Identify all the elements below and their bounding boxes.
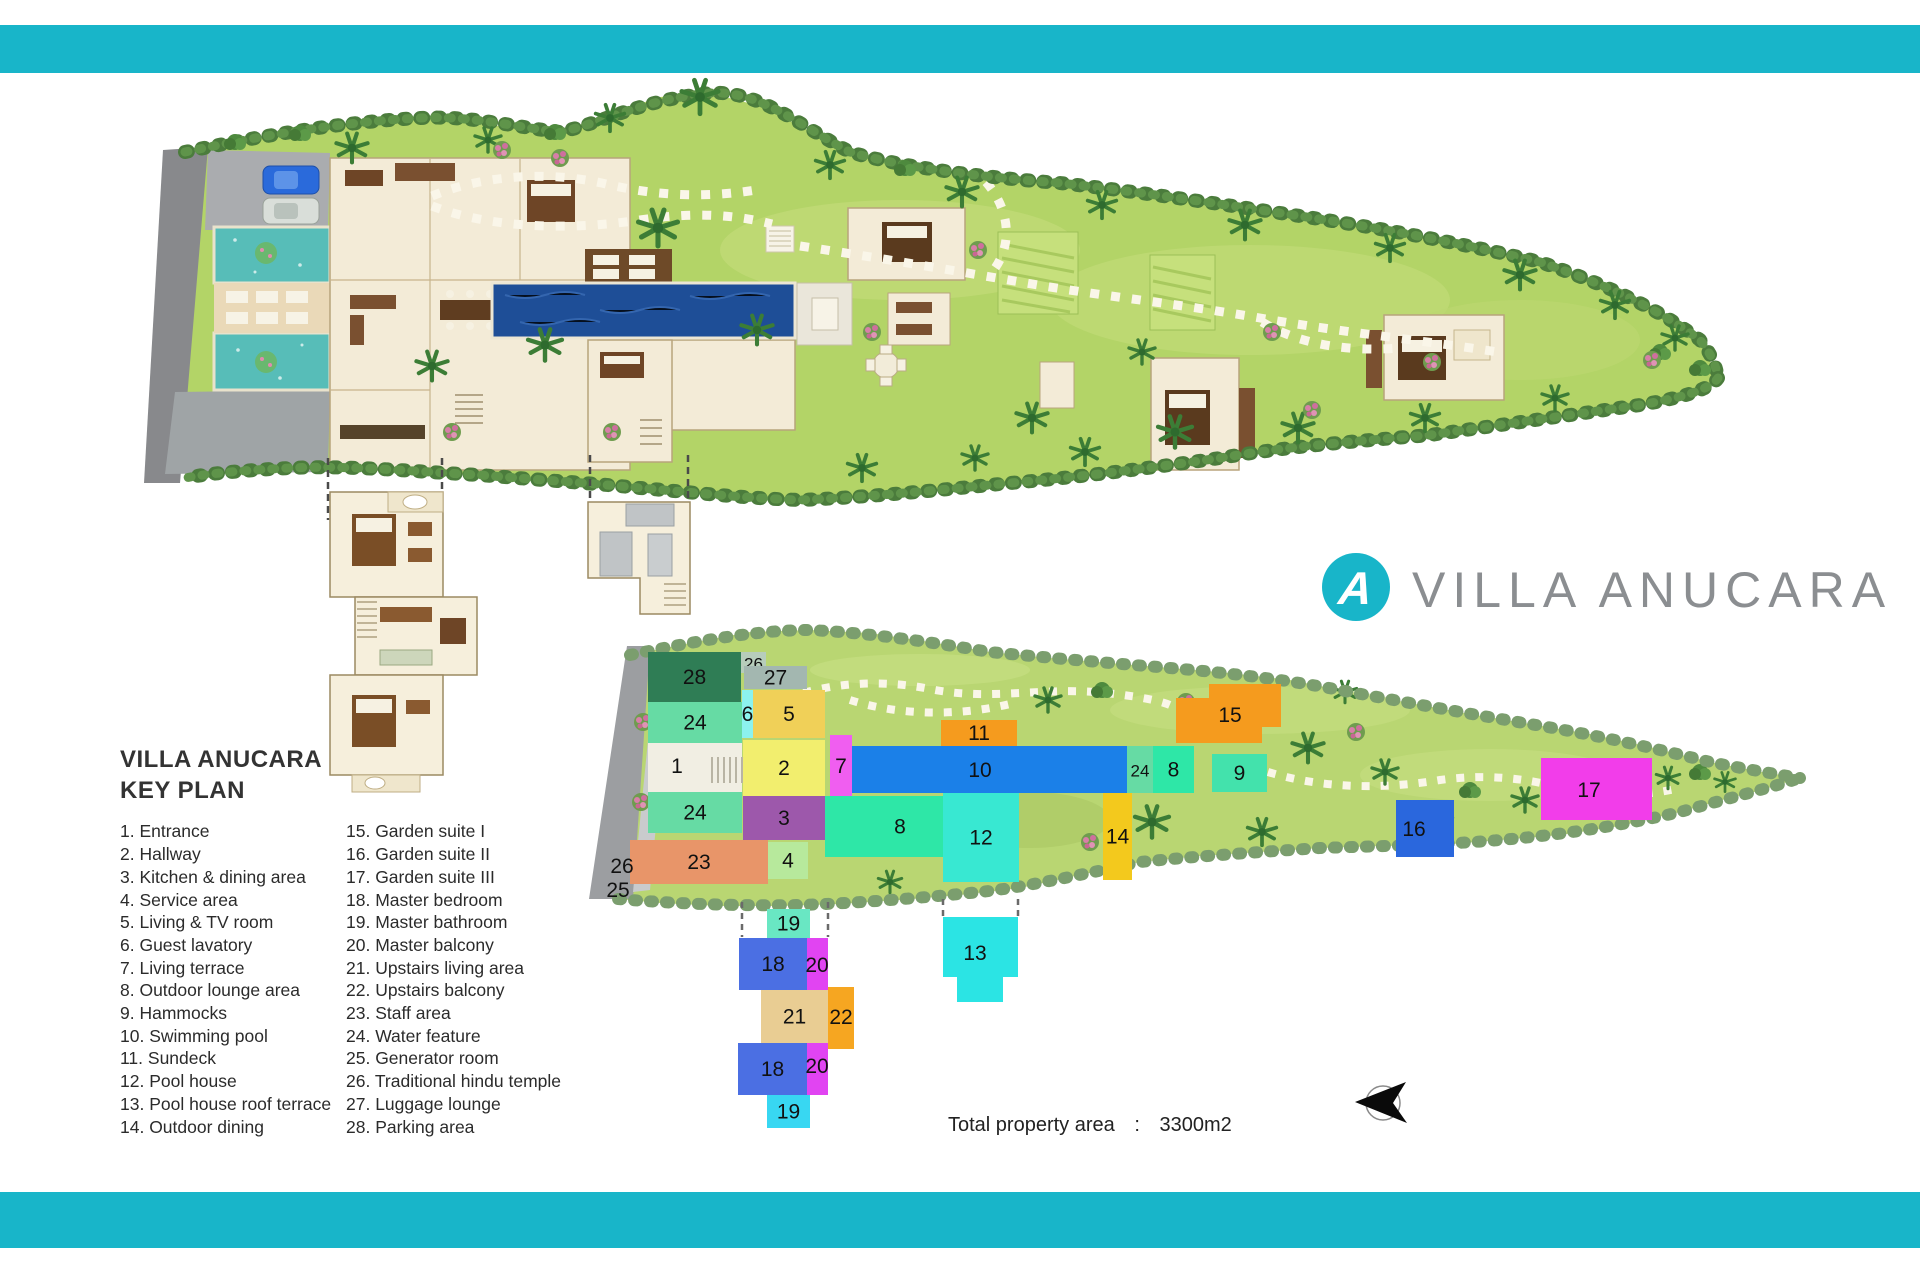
legend-item: 27. Luggage lounge	[346, 1093, 561, 1116]
legend-item: 2. Hallway	[120, 843, 331, 866]
legend-item: 21. Upstairs living area	[346, 957, 561, 980]
legend-item: 13. Pool house roof terrace	[120, 1093, 331, 1116]
legend-item: 23. Staff area	[346, 1002, 561, 1025]
legend-item: 26. Traditional hindu temple	[346, 1070, 561, 1093]
rice-paddy	[1150, 255, 1215, 330]
keyplan-block-label: 19	[777, 1101, 800, 1124]
keyplan-block-label: 2	[778, 757, 790, 780]
logo-mark-icon: A	[1322, 553, 1390, 621]
legend-item: 16. Garden suite II	[346, 843, 561, 866]
keyplan-block-label: 6	[742, 703, 754, 726]
keyplan-block-label: 20	[805, 954, 828, 977]
legend-column-1: 1. Entrance2. Hallway3. Kitchen & dining…	[120, 820, 331, 1138]
keyplan-block-label: 5	[783, 703, 795, 726]
brand-name: VILLA ANUCARA	[1412, 561, 1892, 619]
legend-item: 8. Outdoor lounge area	[120, 979, 331, 1002]
keyplan-block-label: 28	[683, 666, 706, 689]
keyplan-block-label: 24	[683, 712, 707, 735]
legend-title-line2: KEY PLAN	[120, 776, 322, 807]
keyplan-block-label: 20	[805, 1055, 828, 1078]
garden-bale	[1040, 362, 1074, 408]
keyplan-block-label: 9	[1234, 762, 1246, 785]
legend-item: 12. Pool house	[120, 1070, 331, 1093]
logo-letter: A	[1337, 565, 1375, 611]
north-arrow-icon	[1355, 1082, 1407, 1123]
total-area-label: Total property area	[948, 1114, 1115, 1136]
keyplan-block-label: 8	[894, 816, 906, 839]
rice-paddy	[998, 232, 1078, 314]
legend-item: 28. Parking area	[346, 1116, 561, 1139]
keyplan-block-label: 22	[829, 1006, 852, 1029]
keyplan-block-label: 24	[1131, 762, 1150, 781]
legend-item: 24. Water feature	[346, 1025, 561, 1048]
legend-title: VILLA ANUCARA KEY PLAN	[120, 745, 322, 806]
legend-panel: VILLA ANUCARA KEY PLAN 1. Entrance2. Hal…	[120, 745, 322, 820]
page: 2824124232627652734811101224891514161713…	[0, 0, 1920, 1280]
keyplan-block-label: 18	[761, 953, 784, 976]
outdoor-lounge-pavilion	[888, 293, 950, 345]
legend-column-2: 15. Garden suite I16. Garden suite II17.…	[346, 820, 561, 1138]
legend-item: 5. Living & TV room	[120, 911, 331, 934]
legend-item: 25. Generator room	[346, 1047, 561, 1070]
sundeck	[585, 249, 672, 283]
legend-item: 15. Garden suite I	[346, 820, 561, 843]
legend-item: 22. Upstairs balcony	[346, 979, 561, 1002]
legend-item: 4. Service area	[120, 889, 331, 912]
keyplan-block-1	[648, 743, 742, 793]
living-terrace-pavilion	[797, 283, 852, 345]
keyplan-block-label: 11	[968, 722, 990, 745]
keyplan-block-label: 14	[1106, 826, 1130, 849]
schematic-key-plan: 2824124232627652734811101224891514161713…	[589, 630, 1800, 1128]
keyplan-floating-label: 26	[610, 855, 633, 878]
pool-house-roof-plan	[588, 502, 690, 614]
legend-item: 20. Master balcony	[346, 934, 561, 957]
keyplan-block-label: 19	[777, 913, 800, 936]
legend-item: 17. Garden suite III	[346, 866, 561, 889]
total-area-value: 3300m2	[1159, 1114, 1231, 1136]
keyplan-block-label: 1	[671, 755, 683, 778]
keyplan-block-label: 16	[1402, 818, 1425, 841]
keyplan-block-label: 10	[968, 759, 991, 782]
legend-item: 7. Living terrace	[120, 957, 331, 980]
keyplan-block-10	[852, 746, 1132, 793]
legend-item: 6. Guest lavatory	[120, 934, 331, 957]
keyplan-block-label: 23	[687, 851, 710, 874]
total-area-separator: :	[1134, 1114, 1140, 1136]
keyplan-block-label: 15	[1218, 704, 1241, 727]
legend-item: 9. Hammocks	[120, 1002, 331, 1025]
keyplan-block-label: 13	[963, 942, 986, 965]
legend-item: 10. Swimming pool	[120, 1025, 331, 1048]
water-feature-ponds	[214, 227, 330, 390]
total-property-area: Total property area : 3300m2	[948, 1114, 1232, 1137]
upstairs-floor-plan	[330, 492, 477, 792]
legend-item: 3. Kitchen & dining area	[120, 866, 331, 889]
keyplan-block-label: 24	[683, 802, 707, 825]
keyplan-block-label: 8	[1168, 759, 1180, 782]
car-blue	[263, 166, 319, 194]
keyplan-block-label: 27	[764, 667, 787, 690]
keyplan-block-label: 21	[783, 1006, 806, 1029]
legend-item: 11. Sundeck	[120, 1047, 331, 1070]
keyplan-block-label: 18	[761, 1058, 784, 1081]
legend-title-line1: VILLA ANUCARA	[120, 745, 322, 776]
legend-item: 1. Entrance	[120, 820, 331, 843]
garden-bridge	[766, 226, 794, 252]
pool-house-building	[588, 340, 672, 462]
keyplan-block-label: 4	[782, 850, 794, 873]
keyplan-block-label: 3	[778, 807, 790, 830]
keyplan-floating-label: 25	[606, 879, 629, 902]
car-silver	[263, 198, 319, 224]
brand-logo: A VILLA ANUCARA	[1322, 553, 1892, 621]
keyplan-block-label: 12	[969, 827, 992, 850]
legend-item: 14. Outdoor dining	[120, 1116, 331, 1139]
legend-item: 19. Master bathroom	[346, 911, 561, 934]
keyplan-block-label: 7	[835, 755, 847, 778]
legend-item: 18. Master bedroom	[346, 889, 561, 912]
keyplan-block-label: 17	[1577, 779, 1600, 802]
